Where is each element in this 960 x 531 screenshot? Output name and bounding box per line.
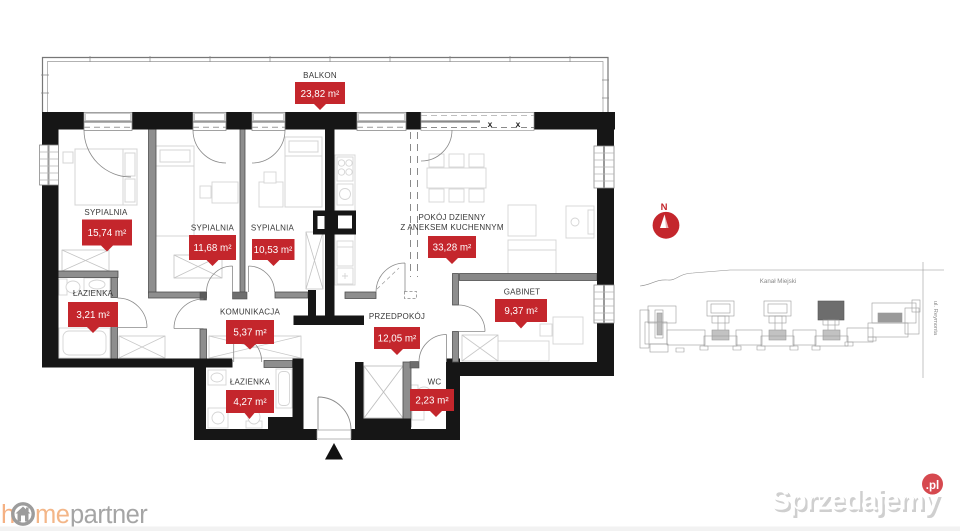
svg-text:23,82 m²: 23,82 m² [301,89,340,100]
svg-text:4,27 m²: 4,27 m² [233,397,267,408]
svg-text:3,21 m²: 3,21 m² [76,310,110,321]
svg-text:SYPIALNIA: SYPIALNIA [251,224,295,233]
svg-text:N: N [661,202,668,213]
svg-text:33,28 m²: 33,28 m² [433,243,472,254]
svg-text:WC: WC [428,378,442,387]
svg-text:Z ANEKSEM KUCHENNYM: Z ANEKSEM KUCHENNYM [400,223,504,232]
svg-text:BALKON: BALKON [303,71,337,80]
svg-text:.pl: .pl [926,480,939,492]
svg-text:POKÓJ DZIENNY: POKÓJ DZIENNY [418,213,486,222]
svg-text:10,53 m²: 10,53 m² [254,245,293,256]
svg-text:15,74 m²: 15,74 m² [88,228,127,239]
svg-text:Sprzedajemy: Sprzedajemy [771,485,940,517]
svg-text:ŁAZIENKA: ŁAZIENKA [73,289,114,298]
svg-text:SYPIALNIA: SYPIALNIA [84,208,128,217]
svg-text:partner: partner [70,501,148,529]
svg-text:12,05 m²: 12,05 m² [378,334,417,345]
svg-text:x: x [516,119,521,129]
svg-text:PRZEDPOKÓJ: PRZEDPOKÓJ [369,312,425,321]
svg-text:11,68 m²: 11,68 m² [194,243,233,254]
svg-text:Kanał Miejski: Kanał Miejski [760,278,796,285]
svg-text:KOMUNIKACJA: KOMUNIKACJA [220,308,280,317]
svg-text:9,37 m²: 9,37 m² [504,306,538,317]
svg-text:x: x [488,119,493,129]
svg-text:2,23 m²: 2,23 m² [415,396,449,407]
svg-text:SYPIALNIA: SYPIALNIA [191,224,235,233]
svg-text:ul. Reymonta: ul. Reymonta [932,301,938,336]
svg-text:me: me [35,501,70,529]
svg-text:5,37 m²: 5,37 m² [233,328,267,339]
svg-text:ŁAZIENKA: ŁAZIENKA [230,378,271,387]
svg-text:GABINET: GABINET [504,288,541,297]
